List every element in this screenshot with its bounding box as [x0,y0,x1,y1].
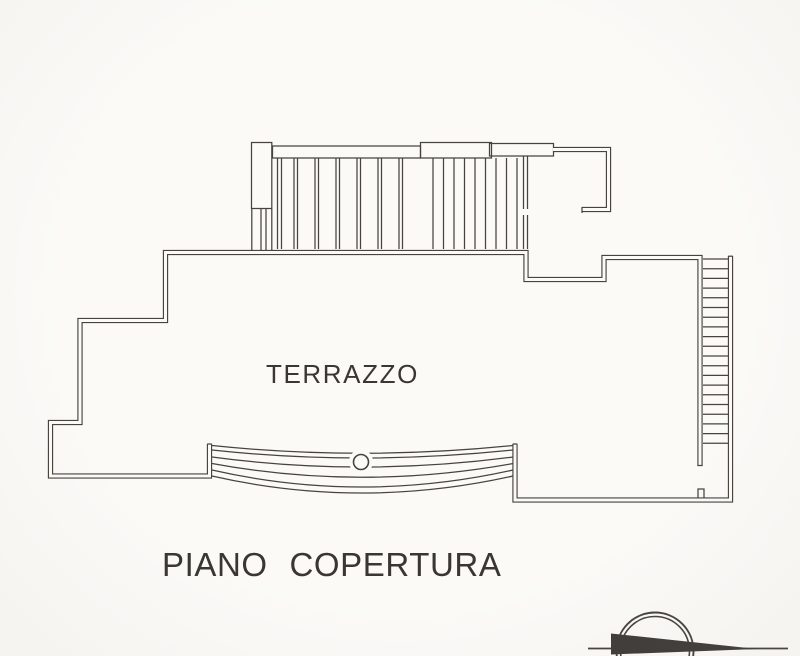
roof-hook-wall [553,150,609,214]
pergola-slats [278,156,528,249]
curved-canopy [212,446,513,494]
plan-title: PIANO COPERTURA [162,546,501,584]
floor-plan-sheet: TERRAZZO PIANO COPERTURA [0,0,800,656]
pergola-structure [252,143,554,251]
external-ladder [703,259,728,443]
north-arrow-icon [588,613,788,656]
terrace-area-label: TERRAZZO [266,359,419,390]
